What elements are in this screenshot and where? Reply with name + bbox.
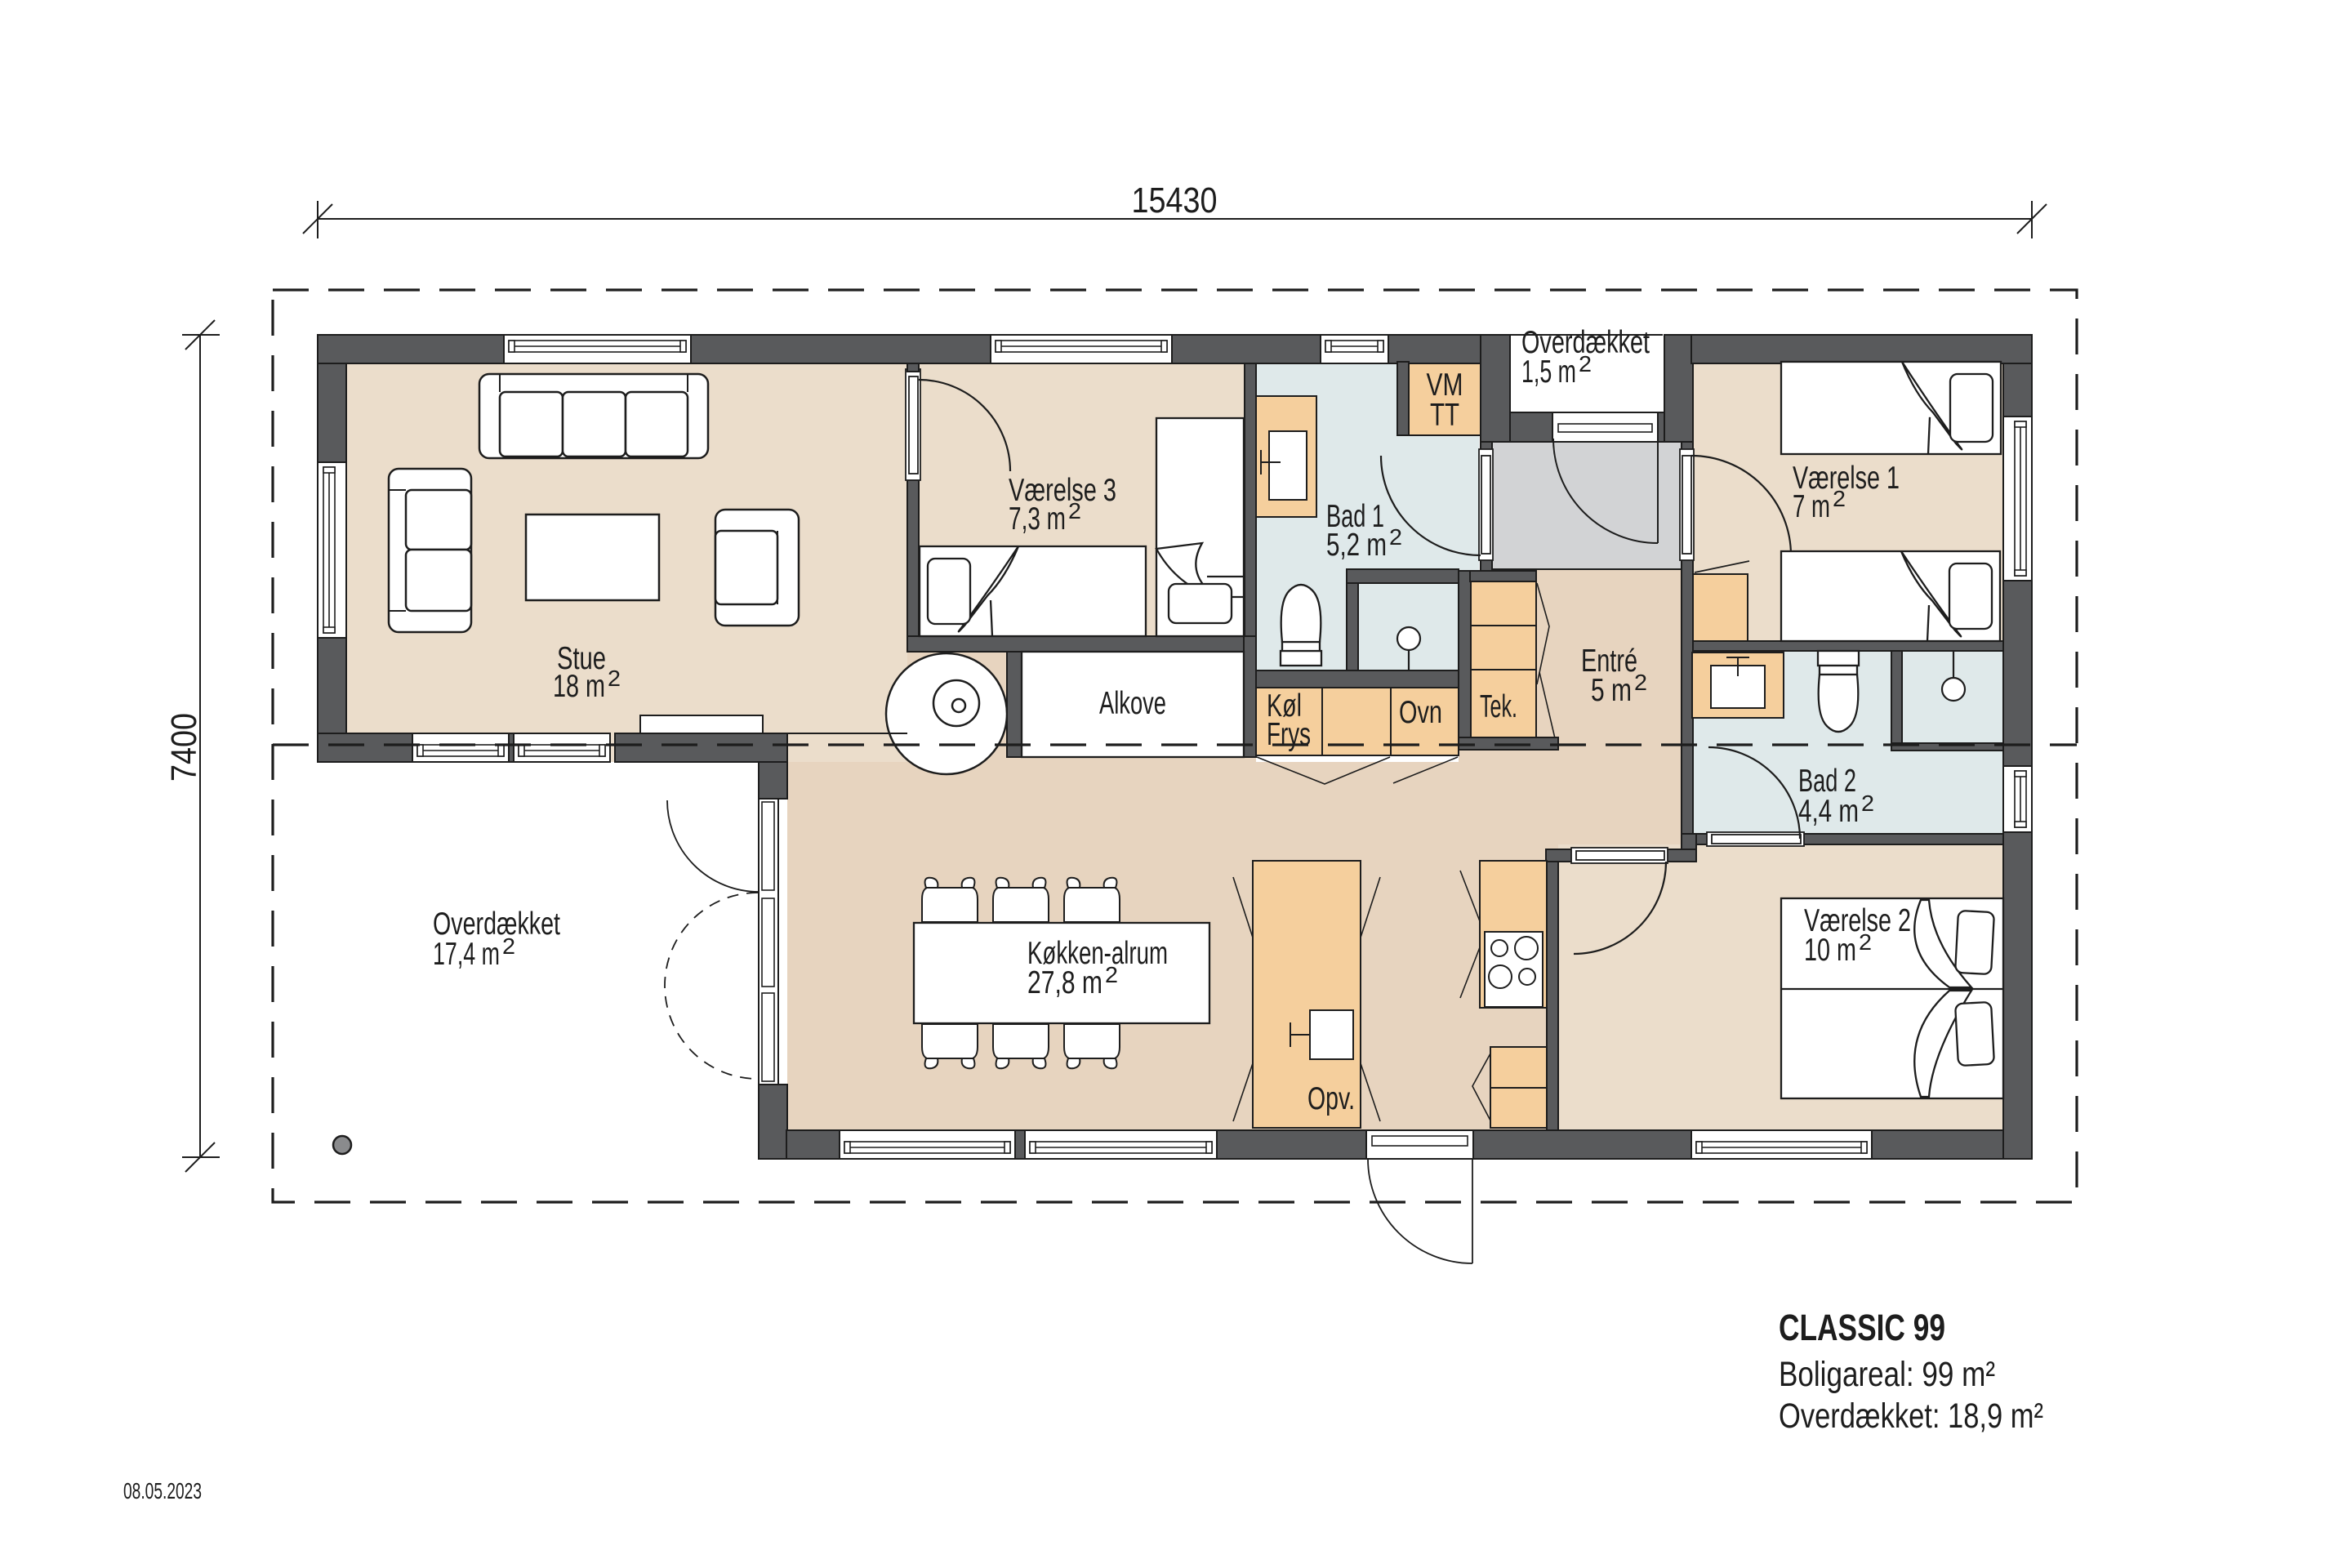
svg-text:2: 2 [1579, 351, 1592, 376]
svg-text:CLASSIC 99: CLASSIC 99 [1779, 1307, 1945, 1348]
svg-text:08.05.2023: 08.05.2023 [123, 1478, 202, 1503]
svg-text:7,3 m: 7,3 m [1009, 501, 1066, 537]
svg-text:2: 2 [502, 933, 515, 959]
svg-text:Alkove: Alkove [1099, 686, 1166, 721]
svg-text:Frys: Frys [1267, 717, 1311, 752]
svg-text:Boligareal: 99 m²: Boligareal: 99 m² [1779, 1355, 1995, 1394]
svg-text:1,5 m: 1,5 m [1521, 354, 1576, 390]
svg-text:17,4 m: 17,4 m [433, 937, 500, 972]
svg-text:7400: 7400 [164, 713, 204, 782]
svg-text:2: 2 [1389, 524, 1402, 550]
svg-text:27,8 m: 27,8 m [1027, 965, 1102, 1000]
svg-text:2: 2 [1634, 670, 1647, 695]
svg-text:10 m: 10 m [1804, 933, 1856, 968]
svg-text:2: 2 [1861, 791, 1874, 816]
svg-text:2: 2 [1068, 498, 1081, 523]
svg-text:15430: 15430 [1132, 180, 1218, 220]
svg-text:Ovn: Ovn [1399, 695, 1442, 730]
svg-text:7 m: 7 m [1793, 489, 1830, 524]
svg-text:2: 2 [1859, 929, 1872, 955]
svg-text:2: 2 [608, 666, 621, 691]
svg-text:TT: TT [1430, 398, 1459, 433]
svg-text:5 m: 5 m [1591, 673, 1632, 708]
svg-text:4,4 m: 4,4 m [1798, 794, 1859, 829]
svg-text:Tek.: Tek. [1480, 689, 1517, 724]
svg-text:2: 2 [1833, 486, 1846, 511]
svg-text:18 m: 18 m [553, 669, 605, 704]
svg-text:Overdækket: 18,9 m²: Overdækket: 18,9 m² [1779, 1396, 2043, 1436]
svg-text:Opv.: Opv. [1307, 1081, 1355, 1116]
svg-text:2: 2 [1105, 962, 1118, 987]
svg-text:5,2 m: 5,2 m [1326, 528, 1387, 563]
